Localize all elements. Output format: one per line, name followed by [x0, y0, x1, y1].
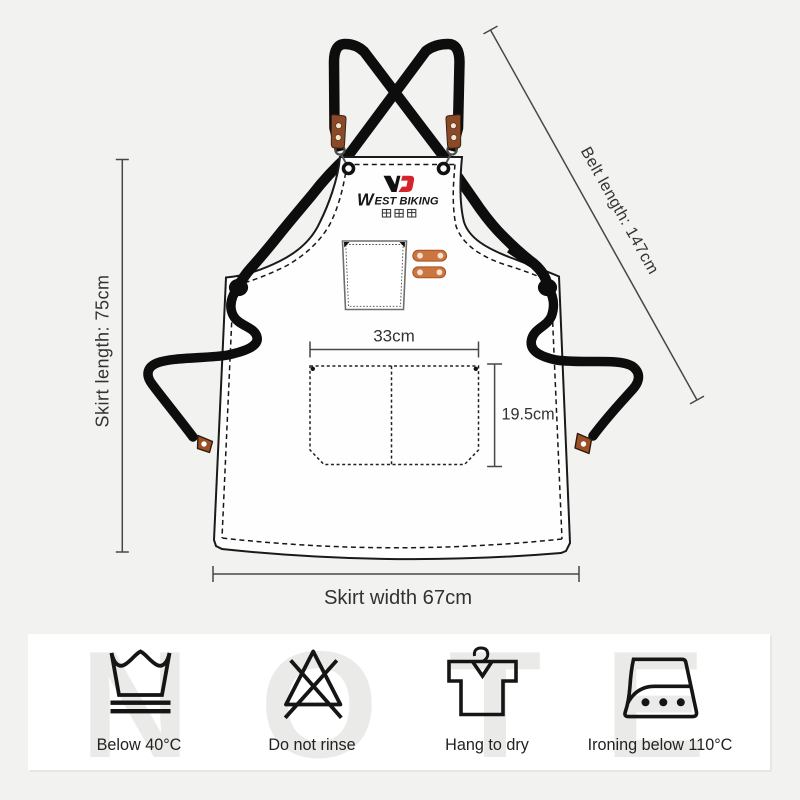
svg-text:19.5cm: 19.5cm: [502, 406, 555, 424]
svg-text:Below 40°C: Below 40°C: [97, 736, 182, 754]
svg-text:E: E: [604, 620, 705, 790]
svg-text:EST BIKING: EST BIKING: [375, 196, 439, 208]
svg-text:Hang to dry: Hang to dry: [445, 736, 530, 754]
svg-text:W: W: [357, 190, 375, 210]
svg-text:N: N: [80, 620, 190, 790]
svg-text:Skirt width 67cm: Skirt width 67cm: [324, 587, 472, 609]
svg-text:Ironing below 110°C: Ironing below 110°C: [588, 736, 733, 754]
svg-text:Skirt length: 75cm: Skirt length: 75cm: [93, 274, 113, 427]
svg-text:33cm: 33cm: [373, 327, 415, 346]
svg-text:Do not rinse: Do not rinse: [268, 736, 355, 754]
